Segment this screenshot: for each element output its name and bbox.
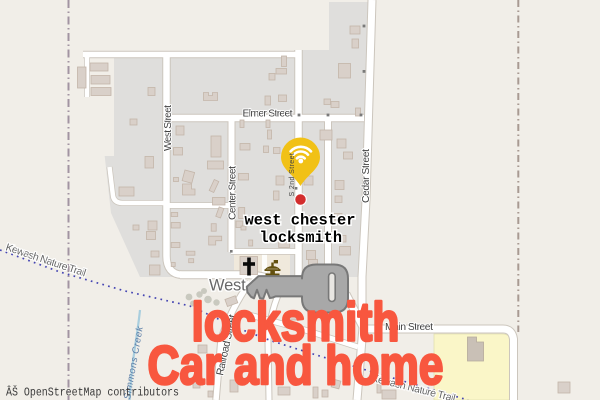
svg-text:West Street: West Street <box>162 105 174 151</box>
svg-text:Cedar Street: Cedar Street <box>360 149 372 203</box>
svg-text:Car and home: Car and home <box>148 335 444 396</box>
svg-text:locksmith: locksmith <box>260 229 343 247</box>
svg-text:S 2nd Street: S 2nd Street <box>289 153 296 197</box>
svg-text:Center Street: Center Street <box>227 166 239 220</box>
svg-text:Elmer Street: Elmer Street <box>243 108 293 120</box>
svg-text:west chester: west chester <box>245 212 356 230</box>
